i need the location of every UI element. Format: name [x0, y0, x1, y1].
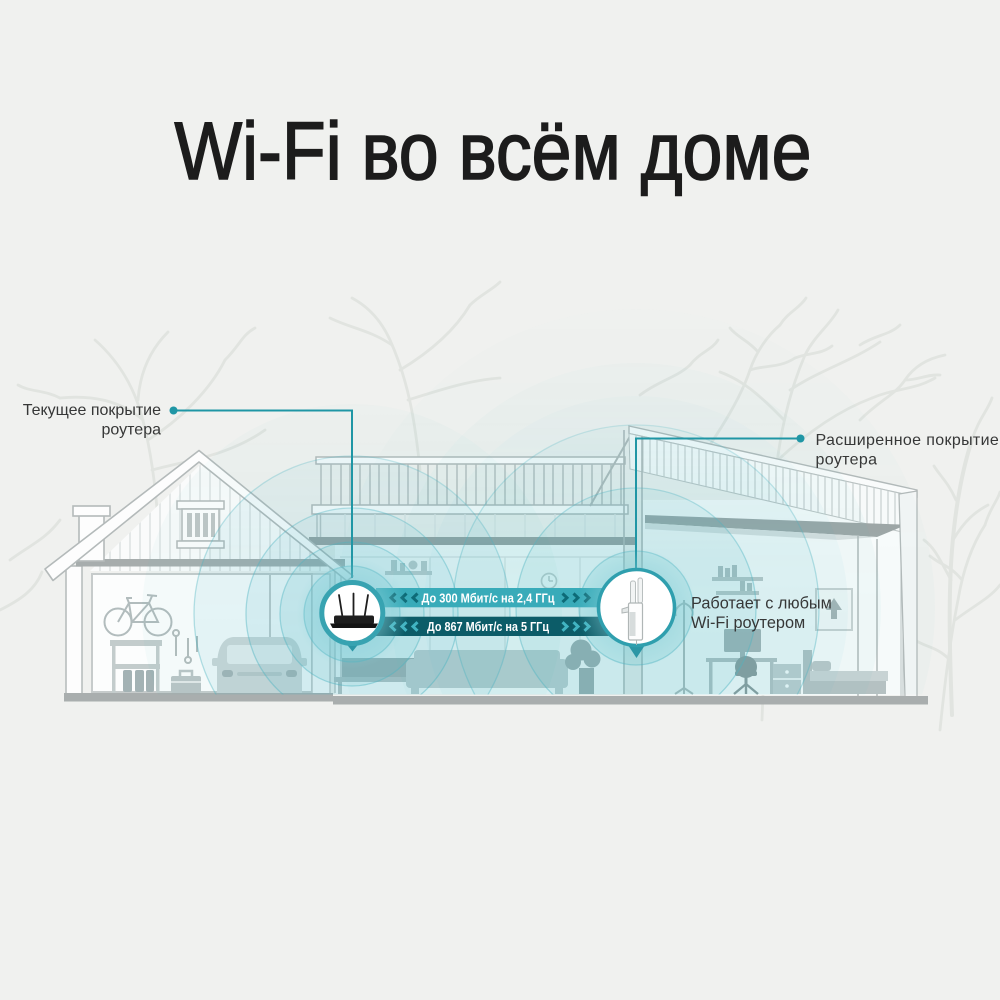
svg-text:Расширенное покрытие: Расширенное покрытие [816, 432, 1000, 449]
svg-text:роутера: роутера [816, 452, 878, 469]
svg-text:Работает с любым: Работает с любым [691, 595, 832, 613]
svg-text:До 867 Мбит/с на 5 ГГц: До 867 Мбит/с на 5 ГГц [427, 619, 549, 634]
svg-text:роутера: роутера [102, 422, 162, 439]
svg-text:Wi-Fi во всём доме: Wi-Fi во всём доме [175, 106, 812, 197]
svg-text:Текущее покрытие: Текущее покрытие [23, 402, 161, 419]
svg-text:Wi-Fi роутером: Wi-Fi роутером [691, 614, 805, 632]
svg-text:До 300 Мбит/с на 2,4 ГГц: До 300 Мбит/с на 2,4 ГГц [422, 590, 555, 605]
